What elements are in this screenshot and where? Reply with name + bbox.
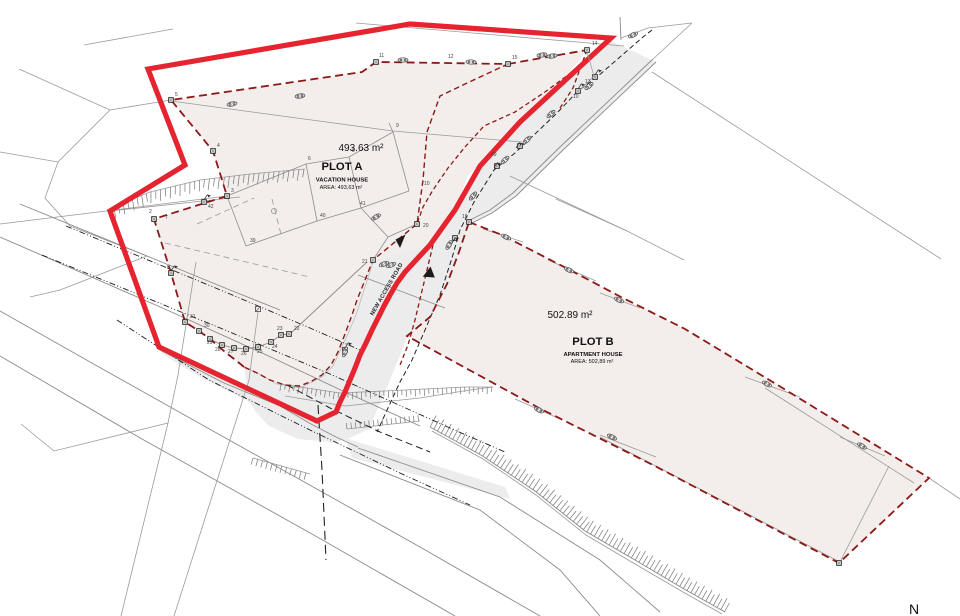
- svg-text:VACATION HOUSE: VACATION HOUSE: [316, 178, 369, 184]
- svg-text:PLOT A: PLOT A: [321, 161, 362, 173]
- svg-text:502.89 m²: 502.89 m²: [547, 310, 593, 321]
- svg-text:42: 42: [208, 204, 214, 210]
- svg-text:493.63 m²: 493.63 m²: [338, 143, 384, 154]
- svg-text:39: 39: [250, 238, 256, 244]
- svg-text:4: 4: [217, 143, 220, 149]
- svg-text:27: 27: [228, 349, 234, 355]
- svg-text:2: 2: [149, 209, 152, 215]
- svg-text:11: 11: [379, 53, 384, 59]
- svg-text:9: 9: [396, 123, 399, 129]
- svg-text:5: 5: [175, 92, 178, 98]
- svg-text:10: 10: [573, 94, 579, 100]
- svg-text:22: 22: [294, 326, 300, 332]
- svg-text:40: 40: [320, 213, 326, 219]
- svg-text:AREA: 493,63 m²: AREA: 493,63 m²: [320, 185, 363, 191]
- svg-text:31: 31: [190, 314, 196, 320]
- svg-text:b: b: [167, 265, 170, 271]
- svg-text:PLOT B: PLOT B: [572, 336, 613, 348]
- svg-text:12: 12: [448, 54, 454, 60]
- svg-text:23: 23: [277, 326, 283, 332]
- svg-text:41: 41: [360, 201, 366, 207]
- svg-text:AREA: 502,89 m²: AREA: 502,89 m²: [571, 359, 614, 365]
- svg-text:21: 21: [362, 259, 368, 265]
- svg-text:3: 3: [231, 188, 234, 194]
- svg-text:26: 26: [241, 351, 247, 357]
- svg-text:APARTMENT HOUSE: APARTMENT HOUSE: [563, 352, 622, 358]
- svg-text:16: 16: [462, 214, 468, 220]
- svg-text:20: 20: [423, 223, 429, 229]
- svg-text:15: 15: [512, 55, 518, 61]
- svg-text:13: 13: [585, 79, 591, 85]
- svg-text:30: 30: [204, 323, 210, 329]
- svg-text:24: 24: [272, 344, 278, 350]
- svg-text:28: 28: [215, 347, 221, 353]
- svg-text:7: 7: [165, 215, 168, 221]
- svg-text:14: 14: [592, 41, 598, 47]
- svg-text:25: 25: [257, 349, 263, 355]
- svg-text:N: N: [909, 601, 919, 616]
- svg-text:29: 29: [207, 340, 213, 346]
- svg-text:10: 10: [424, 181, 430, 187]
- svg-text:49: 49: [491, 152, 497, 158]
- svg-text:6: 6: [308, 156, 311, 162]
